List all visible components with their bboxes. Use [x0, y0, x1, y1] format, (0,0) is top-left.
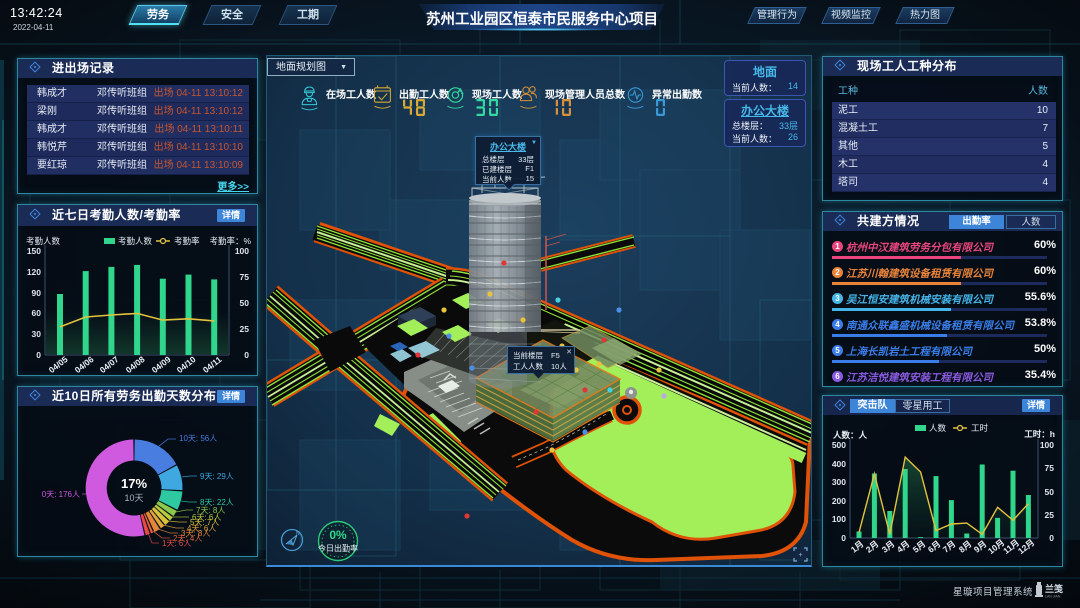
svg-text:工时：h: 工时：h [1024, 429, 1055, 439]
svg-text:50: 50 [1045, 487, 1055, 497]
svg-text:0: 0 [1049, 533, 1054, 543]
svg-text:9天: 29人: 9天: 29人 [200, 472, 234, 481]
svg-text:4月: 4月 [895, 539, 912, 555]
svg-text:0: 0 [36, 350, 41, 360]
svg-text:9月: 9月 [972, 539, 989, 555]
svg-text:N: N [296, 531, 300, 537]
svg-text:04/09: 04/09 [150, 354, 173, 375]
svg-text:120: 120 [27, 267, 41, 277]
svg-text:04/10: 04/10 [175, 354, 198, 375]
svg-text:0%: 0% [329, 528, 347, 542]
svg-text:30: 30 [32, 329, 42, 339]
svg-text:200: 200 [832, 496, 846, 506]
svg-text:10天: 56人: 10天: 56人 [179, 434, 217, 443]
svg-text:0: 0 [244, 350, 249, 360]
svg-text:04/06: 04/06 [73, 354, 96, 375]
svg-text:兰笺: 兰笺 [1045, 583, 1063, 594]
svg-text:LAN JIAN: LAN JIAN [1045, 595, 1061, 599]
svg-text:04/08: 04/08 [124, 354, 147, 375]
svg-text:75: 75 [240, 272, 250, 282]
svg-text:17%: 17% [121, 476, 147, 491]
svg-text:考勤人数: 考勤人数 [118, 236, 153, 246]
svg-text:04/07: 04/07 [98, 354, 121, 375]
svg-text:75: 75 [1045, 463, 1055, 473]
svg-text:04/05: 04/05 [47, 354, 70, 375]
svg-text:工时: 工时 [971, 423, 989, 433]
svg-text:2月: 2月 [864, 539, 881, 555]
svg-text:500: 500 [832, 440, 846, 450]
svg-text:50: 50 [240, 298, 250, 308]
svg-text:人数：人: 人数：人 [833, 430, 868, 440]
svg-text:考勤人数: 考勤人数 [26, 236, 61, 246]
svg-text:10天: 10天 [124, 493, 143, 503]
svg-text:0: 0 [841, 533, 846, 543]
svg-text:100: 100 [1040, 440, 1054, 450]
svg-text:+: + [798, 552, 802, 559]
svg-text:04/11: 04/11 [201, 354, 224, 375]
svg-text:考勤率: 考勤率 [174, 236, 200, 246]
svg-text:90: 90 [32, 288, 42, 298]
svg-text:400: 400 [832, 459, 846, 469]
svg-text:300: 300 [832, 477, 846, 487]
svg-text:今日出勤率: 今日出勤率 [318, 543, 358, 553]
svg-text:0天: 176人: 0天: 176人 [42, 490, 80, 499]
svg-text:1天: 6人: 1天: 6人 [162, 539, 191, 548]
svg-text:25: 25 [240, 324, 250, 334]
svg-text:100: 100 [832, 514, 846, 524]
svg-text:60: 60 [32, 308, 42, 318]
svg-text:100: 100 [235, 246, 249, 256]
svg-text:7月: 7月 [941, 539, 958, 555]
svg-text:考勤率：%: 考勤率：% [209, 236, 251, 246]
svg-text:人数: 人数 [929, 423, 947, 433]
svg-text:150: 150 [27, 246, 41, 256]
svg-text:12月: 12月 [1016, 537, 1036, 556]
svg-text:25: 25 [1045, 510, 1055, 520]
